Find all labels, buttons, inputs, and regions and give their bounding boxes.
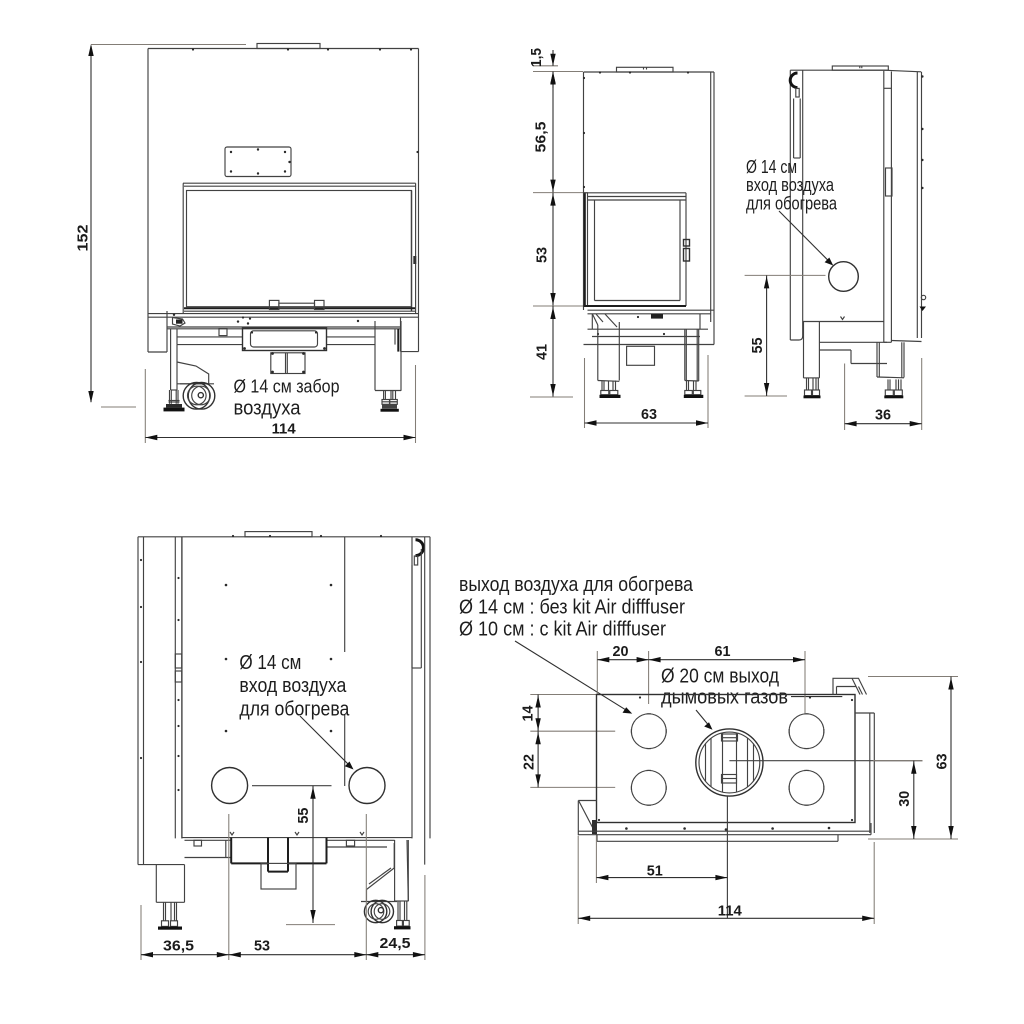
- svg-text:61: 61: [715, 643, 731, 660]
- svg-text:выход воздуха для обогрева: выход воздуха для обогрева: [459, 574, 694, 596]
- svg-text:41: 41: [534, 344, 551, 360]
- svg-text:36: 36: [875, 407, 891, 424]
- svg-text:дымовых газов: дымовых газов: [661, 687, 788, 709]
- svg-text:вход воздуха: вход воздуха: [239, 675, 347, 697]
- svg-text:14: 14: [519, 705, 536, 722]
- svg-text:56,5: 56,5: [533, 122, 550, 153]
- svg-text:114: 114: [272, 421, 297, 438]
- svg-text:22: 22: [520, 754, 537, 770]
- svg-text:вход воздуха: вход воздуха: [746, 175, 835, 195]
- svg-text:24,5: 24,5: [380, 935, 411, 952]
- svg-text:152: 152: [75, 225, 92, 252]
- svg-text:Ø 14 см забор: Ø 14 см забор: [234, 377, 340, 397]
- svg-text:для обогрева: для обогрева: [239, 699, 350, 721]
- svg-text:Ø 14 см : без kit Air difffuse: Ø 14 см : без kit Air difffuser: [459, 597, 685, 619]
- svg-text:20: 20: [613, 643, 629, 660]
- svg-text:36,5: 36,5: [163, 938, 194, 955]
- svg-text:Ø 10 см : с kit Air difffuser: Ø 10 см : с kit Air difffuser: [459, 619, 666, 641]
- svg-text:55: 55: [295, 808, 312, 824]
- svg-text:30: 30: [896, 791, 913, 807]
- svg-text:114: 114: [718, 903, 743, 920]
- svg-text:55: 55: [749, 338, 766, 354]
- svg-text:Ø 14 см: Ø 14 см: [239, 652, 301, 674]
- svg-text:53: 53: [534, 247, 551, 263]
- svg-text:53: 53: [254, 938, 270, 955]
- svg-text:63: 63: [641, 406, 657, 423]
- svg-text:63: 63: [934, 754, 951, 770]
- svg-text:51: 51: [647, 863, 663, 880]
- svg-text:для обогрева: для обогрева: [746, 194, 838, 214]
- svg-text:1,5: 1,5: [528, 48, 545, 67]
- svg-text:воздуха: воздуха: [234, 398, 302, 420]
- svg-text:Ø 20 см выход: Ø 20 см выход: [661, 666, 779, 688]
- svg-text:Ø 14 см: Ø 14 см: [746, 157, 797, 177]
